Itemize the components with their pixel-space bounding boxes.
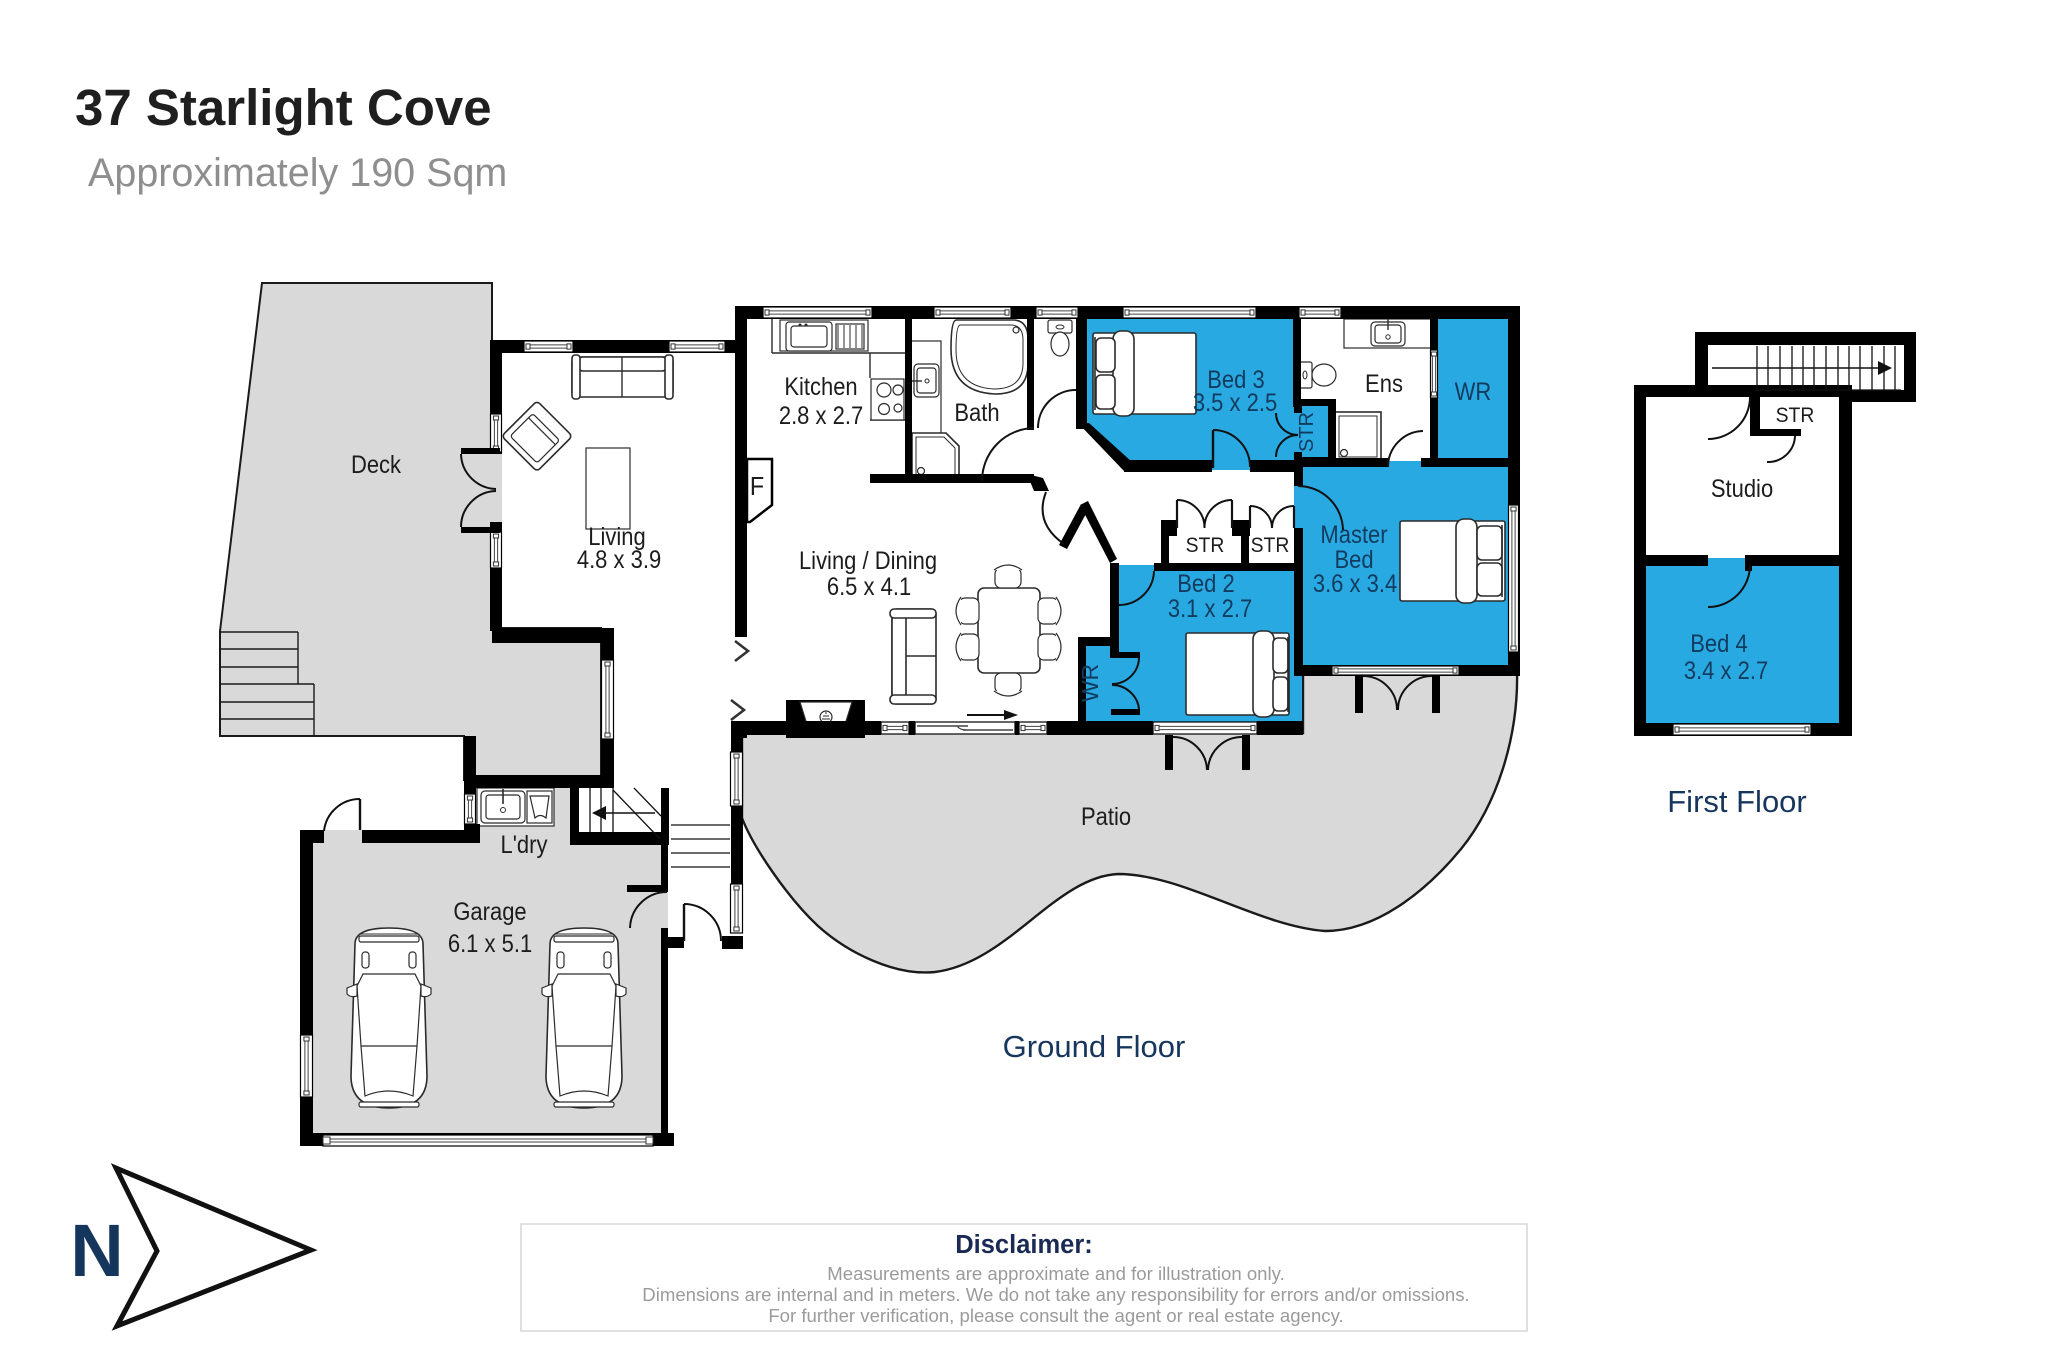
svg-text:STR: STR — [1251, 533, 1290, 557]
svg-text:STR: STR — [1186, 533, 1225, 557]
svg-text:STR: STR — [1296, 412, 1318, 452]
svg-text:Ens: Ens — [1365, 370, 1403, 398]
svg-text:WR: WR — [1455, 378, 1492, 406]
svg-text:First Floor: First Floor — [1667, 784, 1807, 819]
svg-text:Dimensions are internal and in: Dimensions are internal and in meters. W… — [642, 1284, 1469, 1305]
svg-text:Deck: Deck — [351, 451, 401, 479]
svg-text:4.8 x 3.9: 4.8 x 3.9 — [577, 546, 661, 574]
svg-text:F: F — [750, 473, 764, 501]
svg-text:Disclaimer:: Disclaimer: — [955, 1231, 1093, 1259]
svg-text:Bed 4: Bed 4 — [1690, 630, 1747, 658]
svg-text:3.6 x 3.4: 3.6 x 3.4 — [1313, 570, 1397, 598]
svg-text:2.8 x 2.7: 2.8 x 2.7 — [779, 402, 863, 430]
svg-text:L'dry: L'dry — [501, 831, 548, 859]
svg-text:Ground Floor: Ground Floor — [1003, 1029, 1186, 1064]
svg-text:Bed 2: Bed 2 — [1177, 570, 1234, 598]
svg-text:Master: Master — [1320, 521, 1387, 549]
svg-text:For further verification, plea: For further verification, please consult… — [768, 1305, 1343, 1326]
svg-text:Studio: Studio — [1711, 475, 1773, 503]
svg-text:37 Starlight Cove: 37 Starlight Cove — [75, 79, 492, 136]
svg-text:Living / Dining: Living / Dining — [799, 547, 937, 575]
svg-text:6.1 x 5.1: 6.1 x 5.1 — [448, 930, 532, 958]
svg-text:Approximately 190 Sqm: Approximately 190 Sqm — [88, 151, 507, 195]
svg-text:STR: STR — [1776, 403, 1815, 427]
svg-text:N: N — [70, 1209, 123, 1292]
svg-text:Garage: Garage — [453, 898, 526, 926]
svg-text:Bath: Bath — [954, 399, 999, 427]
svg-text:3.1 x 2.7: 3.1 x 2.7 — [1168, 595, 1252, 623]
svg-text:Patio: Patio — [1081, 803, 1131, 831]
svg-text:WR: WR — [1077, 664, 1103, 702]
svg-text:Kitchen: Kitchen — [784, 373, 857, 401]
svg-text:3.4 x 2.7: 3.4 x 2.7 — [1684, 657, 1768, 685]
svg-text:Measurements are approximate a: Measurements are approximate and for ill… — [827, 1263, 1285, 1284]
svg-text:6.5 x 4.1: 6.5 x 4.1 — [827, 573, 911, 601]
svg-text:3.5 x 2.5: 3.5 x 2.5 — [1193, 389, 1277, 417]
